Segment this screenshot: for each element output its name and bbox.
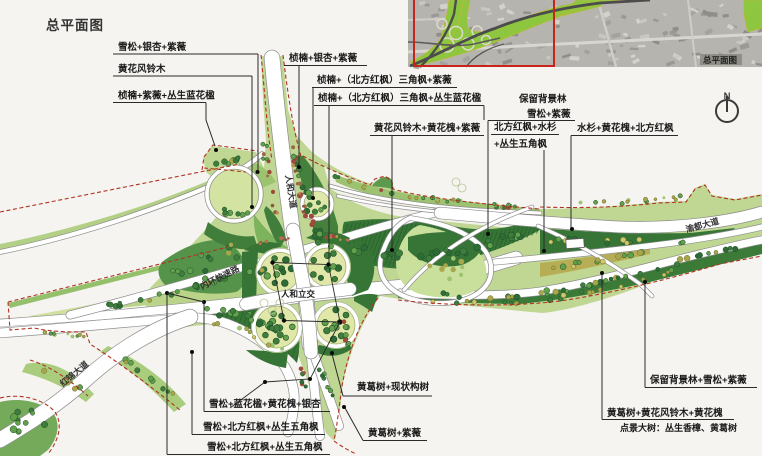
- svg-text:人和立交: 人和立交: [281, 289, 316, 299]
- svg-text:黄葛树+黄花风铃木+黄花槐: 黄葛树+黄花风铃木+黄花槐: [607, 407, 723, 419]
- svg-text:总平面图: 总平面图: [703, 55, 737, 65]
- svg-text:+丛生五角枫: +丛生五角枫: [494, 138, 548, 150]
- svg-text:雪松+紫薇: 雪松+紫薇: [527, 108, 571, 120]
- svg-text:桢楠+紫薇+丛生蓝花楹: 桢楠+紫薇+丛生蓝花楹: [118, 90, 215, 102]
- svg-text:桢楠+银杏+紫薇: 桢楠+银杏+紫薇: [289, 52, 358, 64]
- svg-text:雪松+北方红枫+丛生五角枫: 雪松+北方红枫+丛生五角枫: [203, 421, 319, 433]
- svg-text:保留背景林: 保留背景林: [518, 93, 567, 105]
- svg-text:北方红枫+水杉: 北方红枫+水杉: [494, 121, 557, 133]
- svg-text:黄花风铃木+黄花槐+紫薇: 黄花风铃木+黄花槐+紫薇: [374, 122, 481, 134]
- svg-text:黄葛树+现状构树: 黄葛树+现状构树: [357, 381, 430, 393]
- svg-text:黄葛树+紫薇: 黄葛树+紫薇: [368, 427, 422, 439]
- svg-text:总平面图: 总平面图: [46, 17, 104, 33]
- svg-text:桢楠+（北方红枫）三角枫+丛生蓝花楹: 桢楠+（北方红枫）三角枫+丛生蓝花楹: [318, 92, 482, 104]
- svg-text:雪松+蓝花楹+黄花槐+银杏: 雪松+蓝花楹+黄花槐+银杏: [209, 398, 321, 410]
- svg-text:黄花风铃木: 黄花风铃木: [118, 63, 166, 75]
- svg-text:雪松+北方红枫+丛生五角枫: 雪松+北方红枫+丛生五角枫: [207, 441, 323, 453]
- svg-text:桢楠+（北方红枫）三角枫+紫薇: 桢楠+（北方红枫）三角枫+紫薇: [317, 74, 452, 86]
- svg-text:点景大树：丛生香樟、黄葛树: 点景大树：丛生香樟、黄葛树: [620, 422, 737, 433]
- svg-text:N: N: [724, 91, 731, 102]
- svg-text:雪松+银杏+紫薇: 雪松+银杏+紫薇: [118, 41, 187, 53]
- svg-text:保留背景林+雪松+紫薇: 保留背景林+雪松+紫薇: [649, 374, 747, 386]
- svg-text:水杉+黄花槐+北方红枫: 水杉+黄花槐+北方红枫: [577, 122, 674, 134]
